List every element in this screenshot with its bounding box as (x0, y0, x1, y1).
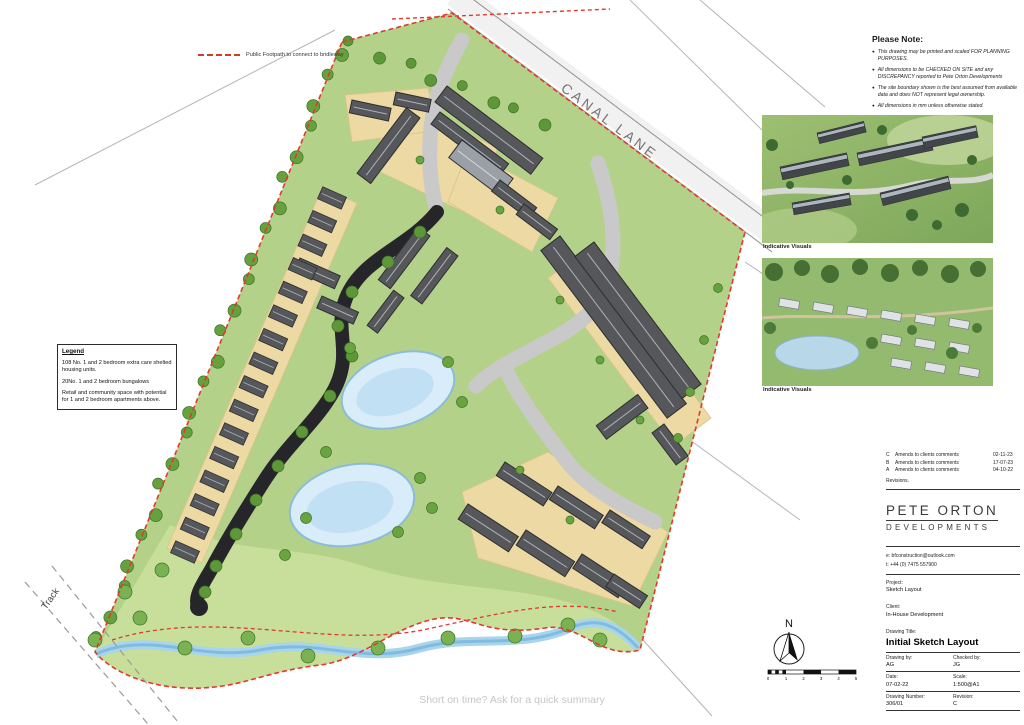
project-label: Project: (886, 580, 1020, 586)
scale-cell: Scale: 1:500@A1 (953, 672, 1020, 692)
scale-value: 1:500@A1 (953, 682, 1020, 688)
scale-tick: 4 (837, 676, 840, 681)
revision-desc: Amends to clients comments (895, 460, 993, 468)
company-logo: PETE ORTON DEVELOPMENTS (886, 502, 1020, 532)
revision-row: A Amends to clients comments 04-10-22 (886, 467, 1020, 475)
revision-row: B Amends to clients comments 17-07-23 (886, 460, 1020, 468)
red-dash-icon (198, 54, 240, 56)
title-block: C Amends to clients comments 02-11-23 B … (886, 452, 1020, 711)
please-note-text: All dimensions to be CHECKED ON SITE and… (878, 67, 1022, 81)
please-note-text: All dimensions in mm unless otherwise st… (878, 103, 984, 110)
revision-letter: B (886, 460, 895, 468)
revision-date: 02-11-23 (993, 452, 1020, 460)
drawing-sheet: CANAL LANE Track N 0 1 2 3 4 5 (0, 0, 1024, 725)
track-label: Track (39, 586, 62, 612)
legend-item: 108 No. 1 and 2 bedroom extra care shelt… (62, 360, 172, 375)
please-note-item: ● All dimensions in mm unless otherwise … (872, 103, 1022, 110)
north-label: N (785, 618, 793, 630)
company-name: PETE ORTON (886, 503, 998, 521)
footer-note: Short on time? Ask for a quick summary (0, 694, 1024, 706)
date-value: 07-02-22 (886, 682, 953, 688)
revision-date: 04-10-22 (993, 467, 1020, 475)
drawing-by-label: Drawing by: (886, 655, 953, 661)
project-section: Project: Sketch Layout (886, 580, 1020, 594)
bullet-icon: ● (872, 85, 875, 99)
scale-tick: 2 (802, 676, 805, 681)
footpath-key: Public Footpath to connect to bridleway (198, 52, 344, 58)
please-note-item: ● The site boundary shown is the best as… (872, 85, 1022, 99)
please-note-text: This drawing may be printed and scaled F… (878, 49, 1022, 63)
drawing-by-value: AG (886, 662, 953, 668)
drawing-by-cell: Drawing by: AG (886, 653, 953, 673)
scale-bar: 0 1 2 3 4 5 (767, 670, 858, 681)
divider (886, 489, 1020, 490)
please-note: Please Note: ● This drawing may be print… (872, 34, 1022, 114)
contact-phone: t: +44 (0) 7475 557900 (886, 561, 1020, 569)
checked-by-cell: Checked by: JG (953, 653, 1020, 673)
checked-by-value: JG (953, 662, 1020, 668)
drawing-title-section: Drawing Title: Initial Sketch Layout (886, 629, 1020, 648)
revision-date: 17-07-23 (993, 460, 1020, 468)
scale-tick: 3 (820, 676, 823, 681)
project-value: Sketch Layout (886, 587, 1020, 593)
date-cell: Date: 07-02-22 (886, 672, 953, 692)
indicative-visual-2-label: Indicative Visuals (763, 387, 812, 393)
footpath-key-label: Public Footpath to connect to bridleway (246, 52, 344, 58)
please-note-text: The site boundary shown is the best assu… (878, 85, 1022, 99)
revision-letter: C (886, 452, 895, 460)
client-value: In-House Development (886, 612, 1020, 618)
client-label: Client: (886, 604, 1020, 610)
drawing-title-value: Initial Sketch Layout (886, 637, 1020, 648)
revision-desc: Amends to clients comments (895, 467, 993, 475)
company-subtitle: DEVELOPMENTS (886, 523, 1020, 532)
scale-tick: 1 (785, 676, 788, 681)
please-note-item: ● This drawing may be printed and scaled… (872, 49, 1022, 63)
bullet-icon: ● (872, 49, 875, 63)
indicative-visual-1-image (762, 115, 993, 243)
revision-letter: A (886, 467, 895, 475)
divider (886, 574, 1020, 575)
scale-tick: 5 (855, 676, 858, 681)
please-note-title: Please Note: (872, 34, 1022, 44)
indicative-visual-1-label: Indicative Visuals (763, 244, 812, 250)
drawing-title-label: Drawing Title: (886, 629, 1020, 635)
legend-box: Legend 108 No. 1 and 2 bedroom extra car… (57, 344, 177, 410)
please-note-item: ● All dimensions to be CHECKED ON SITE a… (872, 67, 1022, 81)
scale-label: Scale: (953, 674, 1020, 680)
north-arrow: N (774, 618, 804, 664)
bullet-icon: ● (872, 103, 875, 110)
divider (886, 546, 1020, 547)
checked-by-label: Checked by: (953, 655, 1020, 661)
revision-row: C Amends to clients comments 02-11-23 (886, 452, 1020, 460)
legend-item: 20No. 1 and 2 bedroom bungalows (62, 379, 172, 386)
legend-title: Legend (62, 348, 172, 356)
scale-tick: 0 (767, 676, 770, 681)
revisions-caption: Revisions. (886, 478, 1020, 484)
indicative-visual-2-image (762, 258, 993, 386)
legend-item: Retail and community space with potentia… (62, 390, 172, 405)
contact-email: e: bfconstruction@outlook.com (886, 552, 1020, 560)
date-label: Date: (886, 674, 953, 680)
client-section: Client: In-House Development (886, 604, 1020, 618)
bullet-icon: ● (872, 67, 875, 81)
revision-desc: Amends to clients comments (895, 452, 993, 460)
